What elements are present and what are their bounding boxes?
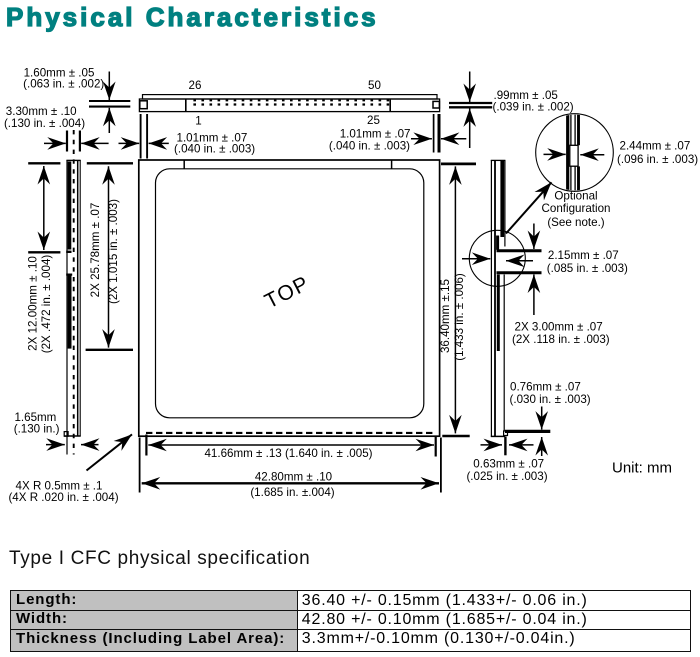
svg-text:0.63mm ± .07: 0.63mm ± .07 [473, 458, 544, 471]
svg-text:(.085 in. ± .003): (.085 in. ± .003) [547, 262, 628, 275]
svg-text:(.039 in. ± .002): (.039 in. ± .002) [493, 101, 574, 114]
svg-text:TOP: TOP [261, 272, 313, 314]
svg-text:(2X .118 in. ± .003): (2X .118 in. ± .003) [512, 333, 610, 346]
svg-text:2X 25.78mm ± .07: 2X 25.78mm ± .07 [89, 203, 102, 298]
svg-text:1: 1 [195, 115, 201, 128]
svg-text:(2X .472 in. ± .004): (2X .472 in. ± .004) [40, 255, 53, 354]
svg-text:(4X R .020 in. ± .004): (4X R .020 in. ± .004) [8, 491, 118, 504]
svg-text:Configuration: Configuration [542, 202, 611, 215]
svg-text:25: 25 [367, 114, 380, 127]
svg-text:(See note.): (See note.) [547, 216, 604, 229]
svg-text:2.15mm ± .07: 2.15mm ± .07 [548, 249, 619, 262]
svg-text:(.030 in. ± .003): (.030 in. ± .003) [510, 393, 591, 406]
svg-text:(2X 1.015 in. ± .003): (2X 1.015 in. ± .003) [107, 199, 120, 304]
svg-text:26: 26 [189, 79, 202, 92]
svg-text:Unit: mm: Unit: mm [612, 460, 672, 477]
svg-text:(.040 in. ± .003): (.040 in. ± .003) [329, 140, 410, 153]
svg-text:2X 3.00mm ± .07: 2X 3.00mm ± .07 [515, 321, 603, 334]
svg-text:2.44mm ± .07: 2.44mm ± .07 [620, 140, 691, 153]
svg-text:42.80mm ± .10: 42.80mm ± .10 [255, 471, 332, 484]
svg-text:36.40mm ±.15: 36.40mm ±.15 [439, 279, 452, 353]
svg-text:(.063 in. ± .002): (.063 in. ± .002) [23, 78, 104, 91]
svg-text:(1.685 in. ±.004): (1.685 in. ±.004) [250, 486, 334, 499]
svg-text:41.66mm ± .13 (1.640 in. ± .00: 41.66mm ± .13 (1.640 in. ± .005) [204, 447, 372, 460]
svg-text:(.130 in.): (.130 in.) [14, 422, 60, 435]
svg-text:(.096 in. ± .003): (.096 in. ± .003) [617, 153, 698, 166]
svg-text:Optional: Optional [554, 190, 597, 203]
svg-text:50: 50 [368, 79, 381, 92]
svg-text:(.025 in. ± .003): (.025 in. ± .003) [466, 470, 547, 483]
svg-text:2X 12.00mm ± .10: 2X 12.00mm ± .10 [26, 256, 39, 351]
svg-text:(.130 in. ± .004): (.130 in. ± .004) [4, 117, 85, 130]
svg-text:(.040 in. ± .003): (.040 in. ± .003) [174, 142, 255, 155]
svg-text:0.76mm ± .07: 0.76mm ± .07 [510, 381, 581, 394]
